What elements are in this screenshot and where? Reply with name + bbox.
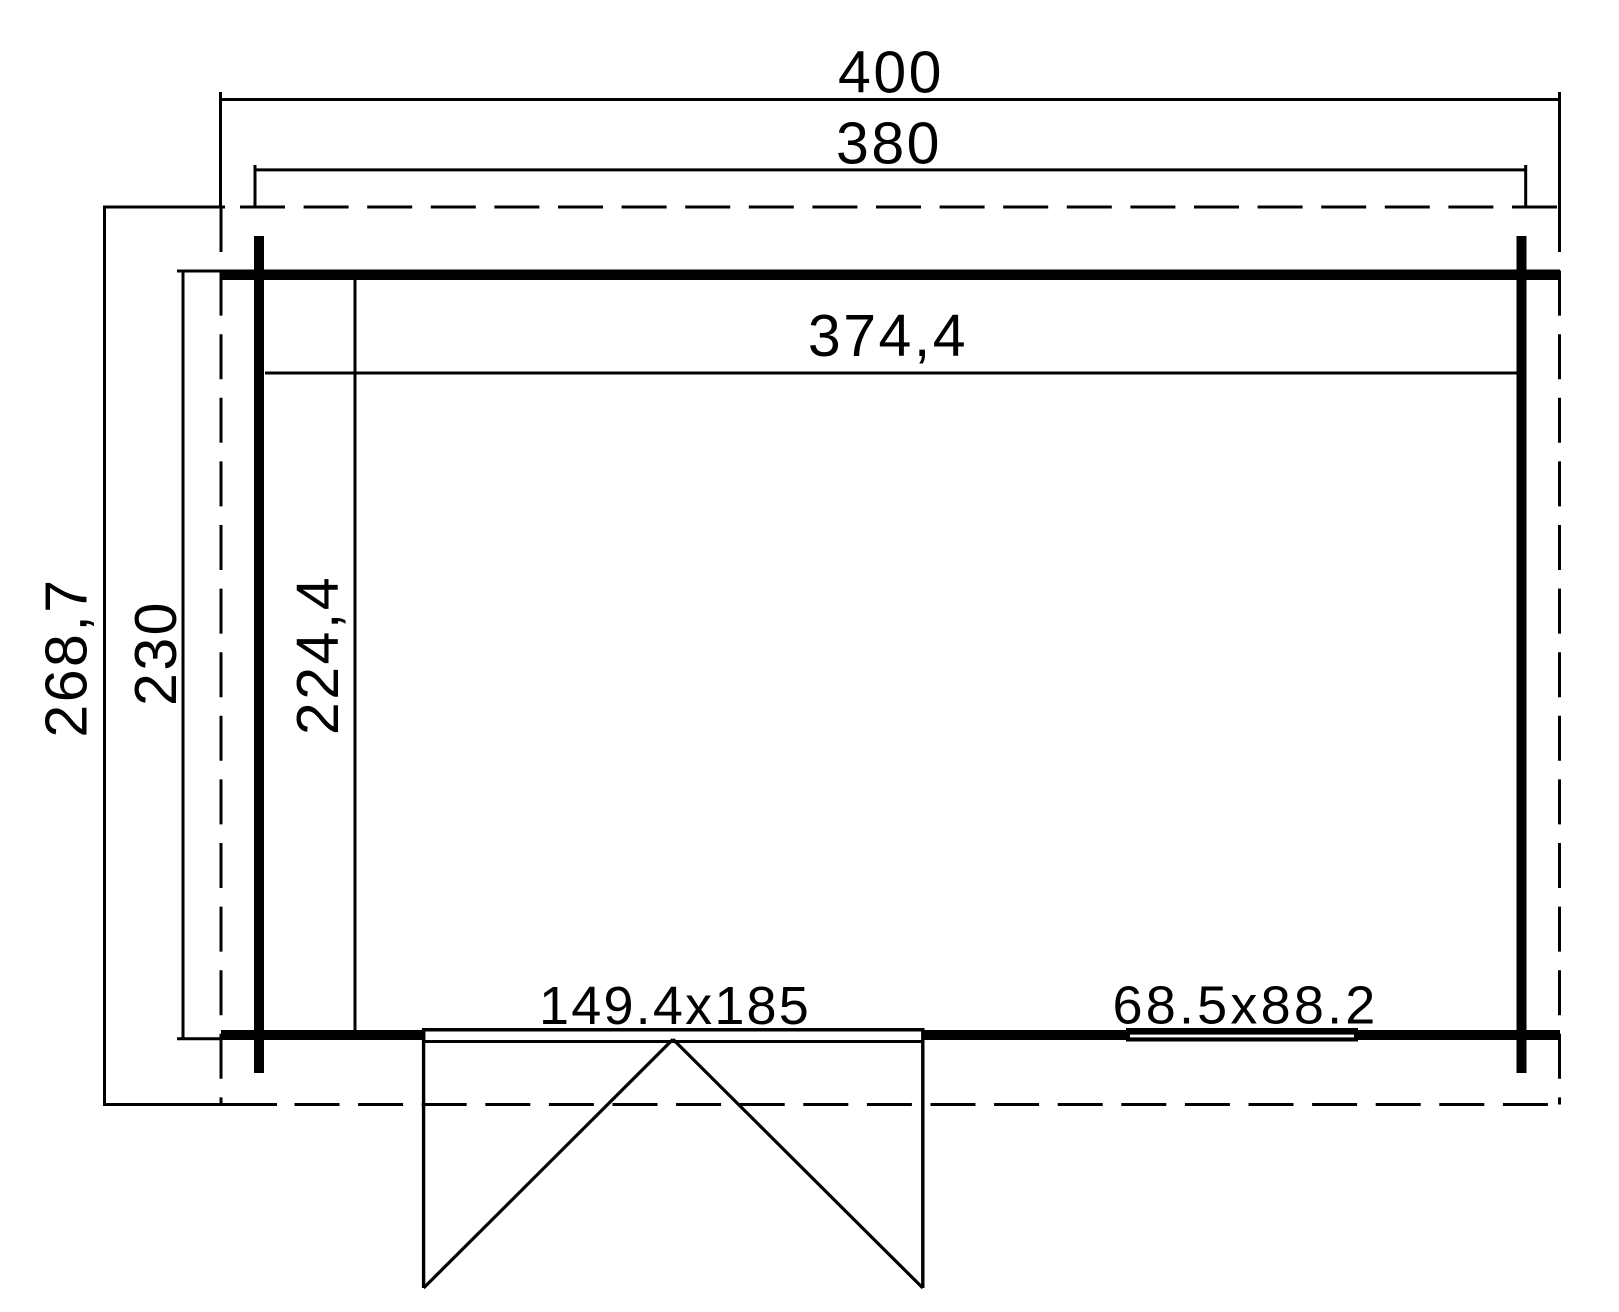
svg-text:268,7: 268,7 <box>34 577 100 737</box>
svg-text:230: 230 <box>123 600 189 706</box>
svg-text:400: 400 <box>838 40 944 106</box>
svg-text:68.5x88.2: 68.5x88.2 <box>1113 976 1379 1036</box>
svg-text:374,4: 374,4 <box>808 303 968 369</box>
svg-text:224,4: 224,4 <box>285 575 351 735</box>
svg-text:380: 380 <box>836 111 942 177</box>
svg-text:149.4x185: 149.4x185 <box>539 976 811 1036</box>
